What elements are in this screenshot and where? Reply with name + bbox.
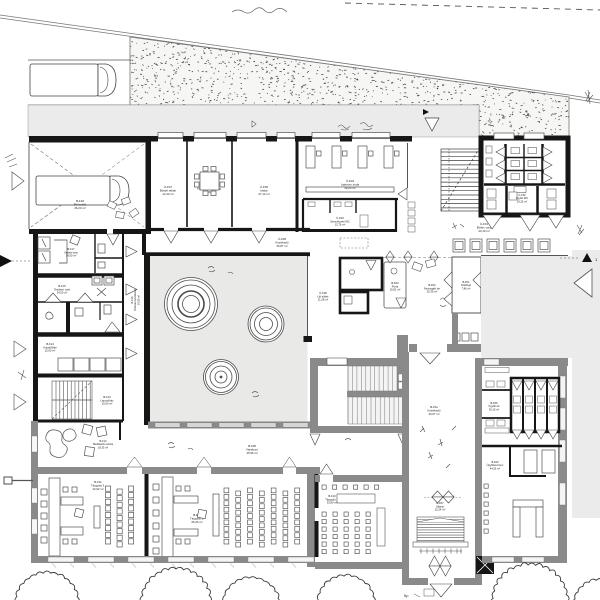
svg-text:6p: 6p [404, 593, 409, 598]
